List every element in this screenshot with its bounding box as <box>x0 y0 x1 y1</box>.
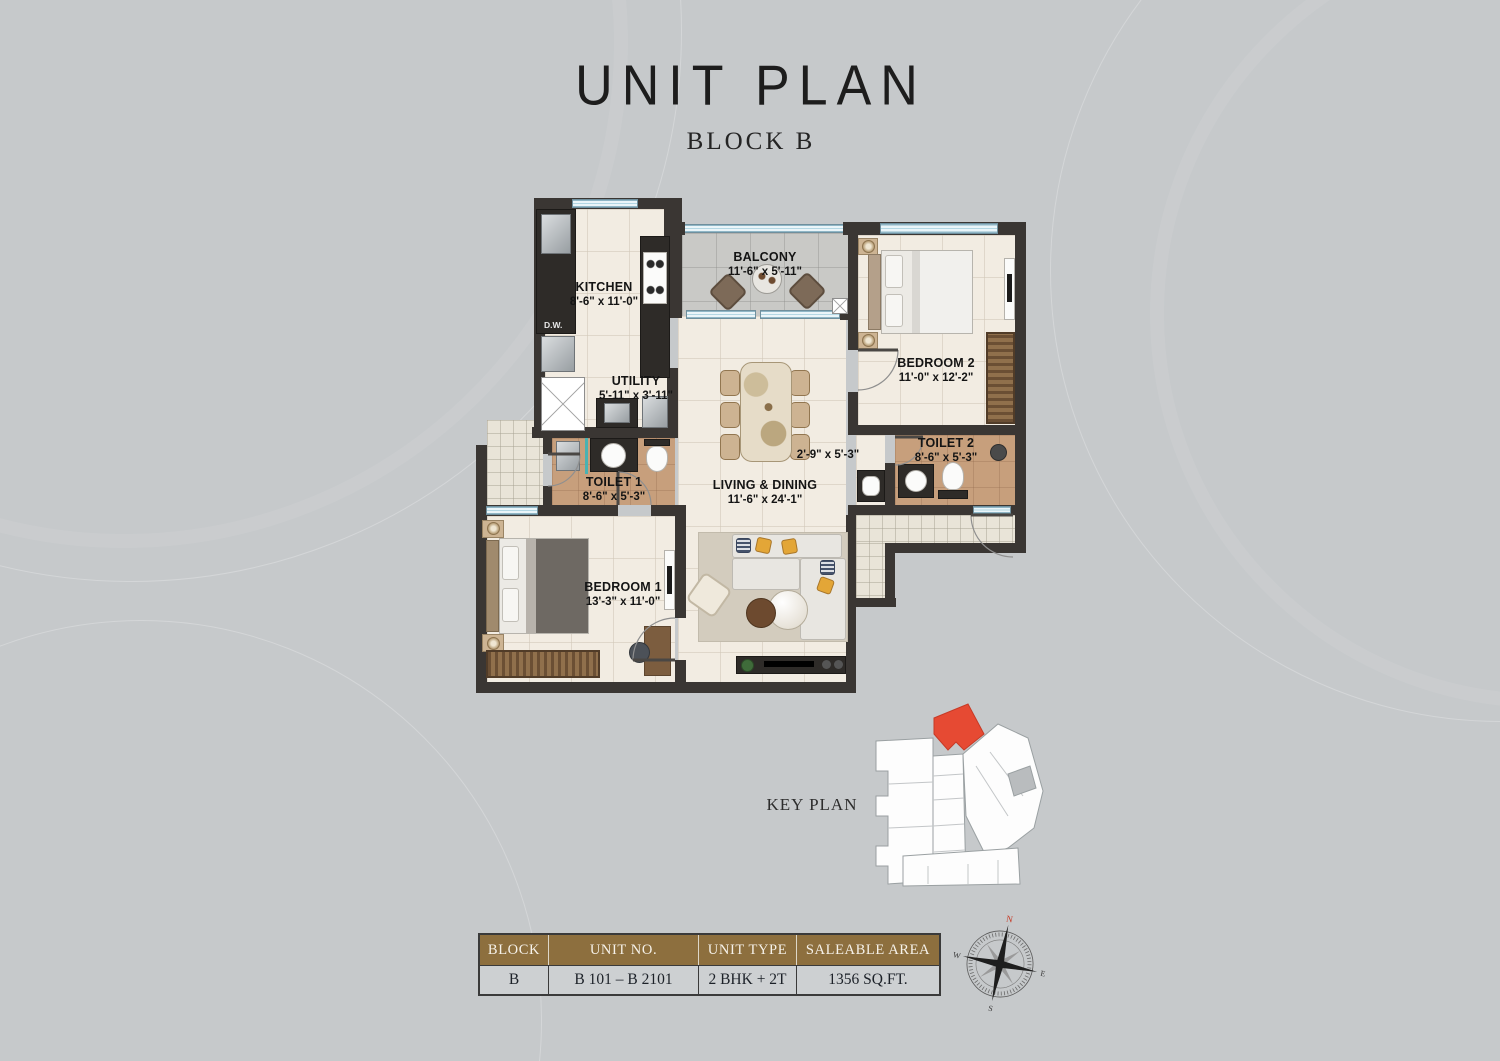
compass-west: W <box>952 950 962 960</box>
spec-table-header-row: BLOCK UNIT NO. UNIT TYPE SALEABLE AREA <box>480 935 939 965</box>
keyplan-drawing <box>858 696 1048 894</box>
bedroom2-label: BEDROOM 2 11'-0" x 12'-2" <box>897 356 975 385</box>
toilet1-label: TOILET 1 8'-6" x 5'-3" <box>583 475 645 504</box>
spec-table: BLOCK UNIT NO. UNIT TYPE SALEABLE AREA B… <box>478 933 941 996</box>
header-block: BLOCK <box>480 935 549 965</box>
header-unit-type: UNIT TYPE <box>699 935 797 965</box>
living-dining-label: LIVING & DINING 11'-6" x 24'-1" <box>713 478 817 507</box>
header-unit-no: UNIT NO. <box>549 935 699 965</box>
floor-plan: D.W. <box>468 198 1038 698</box>
passage-dims-label: 2'-9" x 5'-3" <box>797 448 859 462</box>
page-subtitle: BLOCK B <box>501 128 1001 156</box>
background-swirl <box>0 620 542 1061</box>
value-unit-no: B 101 – B 2101 <box>549 965 699 994</box>
value-saleable-area: 1356 SQ.FT. <box>797 965 939 994</box>
dishwasher-label: D.W. <box>544 320 562 330</box>
compass-east: E <box>1040 969 1047 979</box>
compass-north: N <box>1005 913 1014 924</box>
page-title: UNIT PLAN <box>501 54 1001 119</box>
page: UNIT PLAN BLOCK B <box>0 0 1500 1061</box>
utility-label: UTILITY 5'-11" x 3'-11" <box>599 374 673 403</box>
spec-table-value-row: B B 101 – B 2101 2 BHK + 2T 1356 SQ.FT. <box>480 965 939 994</box>
kitchen-label: KITCHEN 8'-6" x 11'-0" <box>570 280 638 309</box>
header-saleable-area: SALEABLE AREA <box>797 935 939 965</box>
toilet2-label: TOILET 2 8'-6" x 5'-3" <box>915 436 977 465</box>
keyplan-label: KEY PLAN <box>752 795 872 815</box>
compass-south: S <box>987 1004 993 1014</box>
value-block: B <box>480 965 549 994</box>
bedroom1-label: BEDROOM 1 13'-3" x 11'-0" <box>584 580 662 609</box>
compass-rose: N E S W <box>948 912 1052 1016</box>
balcony-label: BALCONY 11'-6" x 5'-11" <box>728 250 802 279</box>
value-unit-type: 2 BHK + 2T <box>699 965 797 994</box>
